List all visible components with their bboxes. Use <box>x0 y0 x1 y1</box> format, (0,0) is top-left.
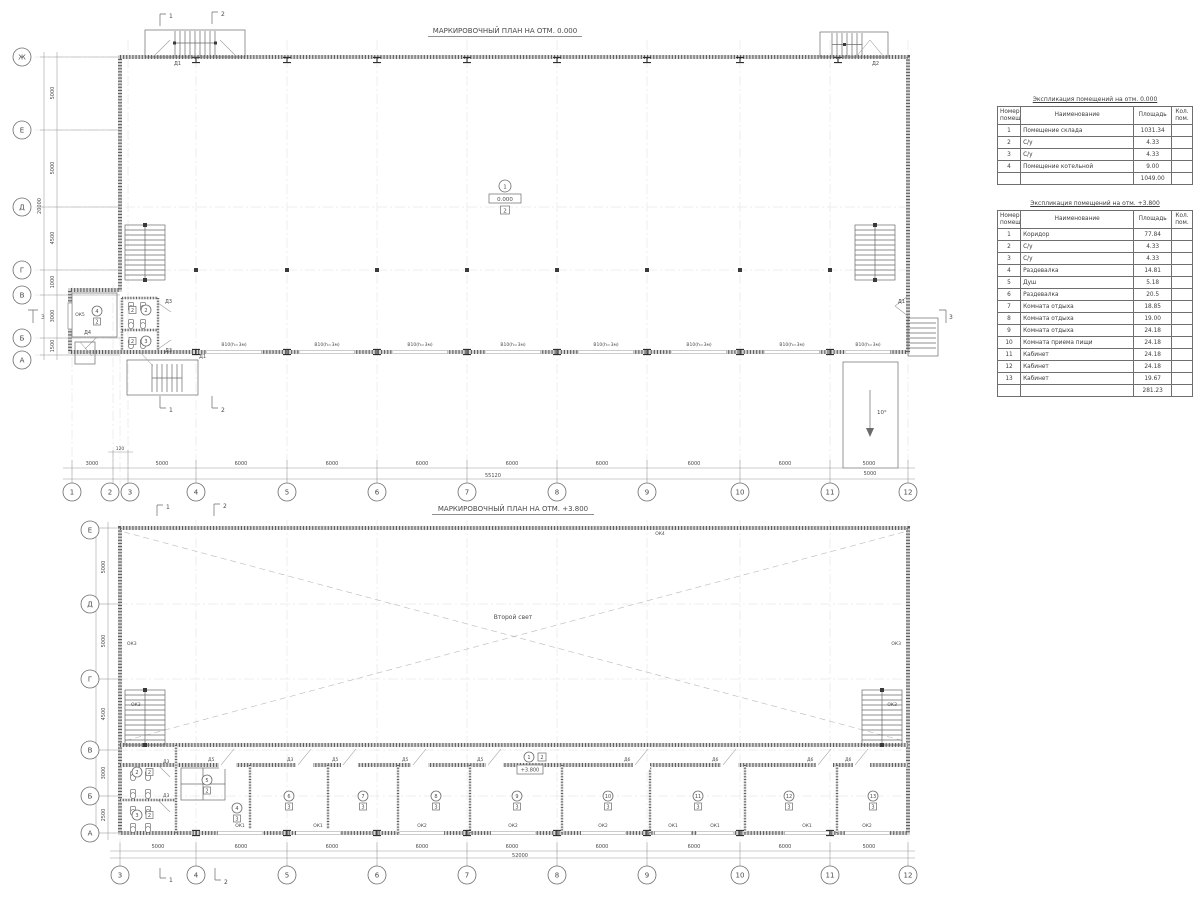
svg-text:6000: 6000 <box>596 844 609 850</box>
svg-text:1000: 1000 <box>50 276 56 289</box>
plan1-axis-lines <box>35 40 908 485</box>
door-label: Д1 <box>174 61 181 67</box>
elevation-value: +3.800 <box>521 768 540 774</box>
svg-text:В: В <box>20 292 25 300</box>
col-header-name: Наименование <box>1021 107 1134 125</box>
svg-text:ОК2: ОК2 <box>417 823 427 829</box>
svg-text:1500: 1500 <box>50 340 56 353</box>
svg-text:8: 8 <box>555 872 559 880</box>
table-row: 1Коридор77.84 <box>998 229 1193 241</box>
plan1-stair-top-left: Д1 <box>145 30 245 67</box>
svg-text:11: 11 <box>826 872 835 880</box>
svg-text:5: 5 <box>285 872 289 880</box>
svg-text:5000: 5000 <box>101 635 107 648</box>
room-number: 3 <box>144 339 147 345</box>
plan2-outer-wall <box>120 528 908 833</box>
svg-text:Б: Б <box>20 335 25 343</box>
svg-text:В10(h=3м): В10(h=3м) <box>686 342 711 348</box>
table-row: 5Душ5.18 <box>998 277 1193 289</box>
svg-text:7: 7 <box>465 872 469 880</box>
svg-text:ОК3: ОК3 <box>891 641 901 647</box>
svg-text:4: 4 <box>194 489 199 497</box>
col-header-area: Площадь <box>1134 211 1172 229</box>
svg-text:12: 12 <box>904 489 913 497</box>
room-number: 3 <box>135 813 138 819</box>
room-category: 2 <box>540 755 543 761</box>
schedule-table-0000: Номерпомещ. Наименование Площадь Кол.пом… <box>997 106 1193 185</box>
svg-text:Д6: Д6 <box>712 757 719 763</box>
table-row: 1Помещение склада1031.34 <box>998 125 1193 137</box>
section-mark-3: 3 <box>41 314 45 321</box>
table-row: 4Раздевалка14.81 <box>998 265 1193 277</box>
plan1-stair-bottom-left: Д1 <box>127 352 206 395</box>
svg-text:2: 2 <box>224 879 228 886</box>
svg-text:2: 2 <box>223 503 227 510</box>
svg-text:Д3: Д3 <box>287 757 294 763</box>
svg-text:6000: 6000 <box>779 461 792 467</box>
ramp-width: 5000 <box>864 471 877 477</box>
door-label: Д3 <box>165 299 172 305</box>
svg-text:В10(h=3м): В10(h=3м) <box>855 342 880 348</box>
svg-text:1: 1 <box>169 877 173 884</box>
plan1-section-top: 1 2 <box>160 11 225 26</box>
svg-text:Г: Г <box>20 267 24 275</box>
svg-text:11: 11 <box>695 794 701 800</box>
svg-text:6000: 6000 <box>688 461 701 467</box>
svg-text:5000: 5000 <box>152 844 165 850</box>
plan2-corridor-walls <box>120 745 908 765</box>
room-category: 2 <box>205 789 208 795</box>
col-header-count: Кол.пом. <box>1172 107 1193 125</box>
svg-text:Д5: Д5 <box>402 757 409 763</box>
svg-text:Д6: Д6 <box>845 757 852 763</box>
svg-text:5: 5 <box>285 489 289 497</box>
svg-text:ОК3: ОК3 <box>887 702 897 708</box>
table-row: 13Кабинет19.67 <box>998 373 1193 385</box>
svg-text:6000: 6000 <box>326 844 339 850</box>
svg-text:6000: 6000 <box>416 844 429 850</box>
schedule-title: Экспликация помещений на отм. +3.800 <box>997 200 1193 207</box>
table-row: 4Помещение котельной9.00 <box>998 161 1193 173</box>
svg-text:6000: 6000 <box>416 461 429 467</box>
svg-text:3: 3 <box>118 872 122 880</box>
svg-text:ОК1: ОК1 <box>313 823 323 829</box>
table-row: 12Кабинет24.18 <box>998 361 1193 373</box>
svg-text:Д5: Д5 <box>477 757 484 763</box>
total-width: 55120 <box>485 473 501 479</box>
room-category: 2 <box>131 339 134 345</box>
table-row: 2С/у4.33 <box>998 241 1193 253</box>
svg-text:Д5: Д5 <box>332 757 339 763</box>
plan1-axis-bubbles-left: Ж Е Д Г В Б А <box>13 48 31 369</box>
plan1-ramp: 10° 5000 <box>843 362 898 477</box>
col-header-num: Номерпомещ. <box>998 211 1021 229</box>
svg-text:Д: Д <box>19 204 25 212</box>
section-mark-1: 1 <box>169 407 173 414</box>
door-label: Д3 <box>163 793 170 799</box>
table-row: 2С/у4.33 <box>998 137 1193 149</box>
svg-text:6: 6 <box>375 872 380 880</box>
room-category: 2 <box>148 770 151 776</box>
svg-text:10: 10 <box>736 872 745 880</box>
svg-text:ОК2: ОК2 <box>598 823 608 829</box>
floor-plan-3800: МАРКИРОВОЧНЫЙ ПЛАН НА ОТМ. +3.800 Второй… <box>81 503 917 886</box>
table-row: 7Комната отдыха18.85 <box>998 301 1193 313</box>
window-label: ОК5 <box>75 312 85 318</box>
svg-text:В10(h=3м): В10(h=3м) <box>221 342 246 348</box>
second-light-label: Второй свет <box>494 614 533 621</box>
header-row: Номерпомещ. Наименование Площадь Кол.пом… <box>998 107 1193 125</box>
door-label: Д2 <box>872 61 879 67</box>
plan2-stairwell-left <box>125 688 165 747</box>
svg-text:8: 8 <box>555 489 559 497</box>
room-number: 4 <box>95 309 98 315</box>
table-row: 11Кабинет24.18 <box>998 349 1193 361</box>
svg-text:6000: 6000 <box>235 844 248 850</box>
col-header-num: Номерпомещ. <box>998 107 1021 125</box>
room-number: 1 <box>527 755 530 761</box>
svg-text:ОК2: ОК2 <box>862 823 872 829</box>
table-row: 10Комната приема пищи24.18 <box>998 337 1193 349</box>
plan1-room-tag: 1 0.000 2 <box>489 180 521 215</box>
svg-text:3: 3 <box>515 805 518 811</box>
svg-text:1: 1 <box>70 489 74 497</box>
svg-text:3: 3 <box>434 805 437 811</box>
table-row: 3С/у4.33 <box>998 253 1193 265</box>
plan2-room-tags: 6 3 7 3 8 3 9 3 10 3 11 3 12 3 13 3 <box>284 791 878 811</box>
svg-text:3: 3 <box>128 489 132 497</box>
plan1-title: МАРКИРОВОЧНЫЙ ПЛАН НА ОТМ. 0.000 <box>433 26 577 35</box>
room-category: 3 <box>235 817 238 823</box>
svg-text:ОК3: ОК3 <box>127 641 137 647</box>
svg-text:В10(h=3м): В10(h=3м) <box>314 342 339 348</box>
room-category: 2 <box>95 320 98 326</box>
svg-text:3000: 3000 <box>86 461 99 467</box>
plan2-axis-lines <box>100 520 908 868</box>
elevation-value: 0.000 <box>497 197 513 203</box>
svg-text:10: 10 <box>736 489 745 497</box>
header-row: Номерпомещ. Наименование Площадь Кол.пом… <box>998 211 1193 229</box>
svg-text:3: 3 <box>787 805 790 811</box>
svg-text:В: В <box>88 747 93 755</box>
svg-text:7: 7 <box>361 794 364 800</box>
table-row: 6Раздевалка20.5 <box>998 289 1193 301</box>
svg-text:3: 3 <box>361 805 364 811</box>
svg-text:6: 6 <box>287 794 290 800</box>
table-row: 8Комната отдыха19.00 <box>998 313 1193 325</box>
room-schedule-3800: Экспликация помещений на отм. +3.800 Ном… <box>997 200 1193 397</box>
section-mark-3: 3 <box>949 314 953 321</box>
drawing-sheet: МАРКИРОВОЧНЫЙ ПЛАН НА ОТМ. 0.000 <box>0 0 1200 900</box>
room-schedule-0000: Экспликация помещений на отм. 0.000 Номе… <box>997 96 1193 185</box>
table-row: 3С/у4.33 <box>998 149 1193 161</box>
svg-text:ОК2: ОК2 <box>508 823 518 829</box>
svg-text:6000: 6000 <box>779 844 792 850</box>
svg-text:3: 3 <box>871 805 874 811</box>
door-label: Д3 <box>165 348 172 354</box>
svg-text:ОК1: ОК1 <box>802 823 812 829</box>
plan1-section-bottom: 1 2 <box>160 396 225 414</box>
svg-text:А: А <box>20 357 25 365</box>
svg-text:9: 9 <box>515 794 518 800</box>
svg-text:12: 12 <box>786 794 792 800</box>
plan2-axis-bubbles-left: Е Д Г В Б А <box>81 521 99 842</box>
col-header-name: Наименование <box>1021 211 1134 229</box>
svg-text:2500: 2500 <box>101 809 107 822</box>
svg-text:6000: 6000 <box>326 461 339 467</box>
svg-text:Б: Б <box>88 793 93 801</box>
section-mark-2: 2 <box>221 407 225 414</box>
section-mark-1: 1 <box>169 13 173 20</box>
svg-text:6000: 6000 <box>596 461 609 467</box>
room-category: 2 <box>148 813 151 819</box>
svg-text:4: 4 <box>194 872 199 880</box>
plan2-shower-block: 5 2 4 3 <box>181 768 242 823</box>
plan1-opening-labels: В10(h=3м) В10(h=3м) В10(h=3м) В10(h=3м) … <box>221 342 880 348</box>
room-number: 5 <box>205 778 208 784</box>
plan2-axis-bubbles-bottom: 3 4 5 6 7 8 9 10 11 12 <box>111 866 917 884</box>
col-header-count: Кол.пом. <box>1172 211 1193 229</box>
total-row: 281.23 <box>998 385 1193 397</box>
plan1-axis-bubbles-bottom: 1 2 3 4 5 6 7 8 9 10 11 12 <box>63 483 917 501</box>
room-schedules: Экспликация помещений на отм. 0.000 Номе… <box>997 96 1193 397</box>
plan2-second-light: Второй свет <box>124 532 904 741</box>
svg-text:Е: Е <box>88 527 92 535</box>
total-height: 20000 <box>37 198 43 214</box>
svg-text:1: 1 <box>166 504 170 511</box>
door-label: Д3 <box>163 759 170 765</box>
room-number: 2 <box>144 308 147 314</box>
svg-text:10: 10 <box>605 794 611 800</box>
svg-text:5000: 5000 <box>863 461 876 467</box>
schedule-title: Экспликация помещений на отм. 0.000 <box>997 96 1193 103</box>
room-number: 2 <box>135 770 138 776</box>
plan1-column-marks <box>192 57 842 354</box>
plan1-stairwell-right <box>855 223 895 282</box>
svg-text:ОК4: ОК4 <box>655 531 665 537</box>
table-row: 9Комната отдыха24.18 <box>998 325 1193 337</box>
ramp-angle: 10° <box>877 410 887 416</box>
room-number: 1 <box>503 185 507 191</box>
svg-text:3: 3 <box>606 805 609 811</box>
room-category: 2 <box>131 308 134 314</box>
floor-plan-0000: МАРКИРОВОЧНЫЙ ПЛАН НА ОТМ. 0.000 <box>13 11 953 501</box>
plan2-dimensions-bottom: 5000 6000 6000 6000 6000 6000 6000 6000 … <box>110 842 915 866</box>
plan2-stairwell-right <box>862 688 902 747</box>
room-category: 2 <box>503 209 507 215</box>
total-row: 1049.00 <box>998 173 1193 185</box>
col-header-area: Площадь <box>1134 107 1172 125</box>
svg-text:Д6: Д6 <box>624 757 631 763</box>
svg-text:Г: Г <box>88 676 92 684</box>
door-label: Д4 <box>84 330 91 336</box>
svg-text:5000: 5000 <box>101 561 107 574</box>
door-label: Д1 <box>898 299 905 305</box>
svg-text:6000: 6000 <box>235 461 248 467</box>
svg-text:ОК3: ОК3 <box>131 702 141 708</box>
plan2-section-top: 1 2 <box>157 503 227 516</box>
plan1-section-left-3: 3 <box>28 310 45 323</box>
svg-text:11: 11 <box>826 489 835 497</box>
door-label: Д1 <box>199 354 206 360</box>
svg-text:4500: 4500 <box>50 232 56 245</box>
svg-text:3000: 3000 <box>101 767 107 780</box>
plan1-wc-block: 2 2 2 3 Д3 Д3 <box>122 298 172 354</box>
svg-text:В10(h=3м): В10(h=3м) <box>593 342 618 348</box>
svg-text:А: А <box>88 830 93 838</box>
svg-text:9: 9 <box>645 489 649 497</box>
svg-text:3: 3 <box>696 805 699 811</box>
svg-text:Д: Д <box>87 601 93 609</box>
svg-text:12: 12 <box>904 872 913 880</box>
svg-text:В10(h=3м): В10(h=3м) <box>779 342 804 348</box>
svg-text:ОК1: ОК1 <box>668 823 678 829</box>
plan1-stairwell-left <box>125 223 165 282</box>
svg-text:Ж: Ж <box>18 54 26 62</box>
svg-text:Д5: Д5 <box>208 757 215 763</box>
svg-text:В10(h=3м): В10(h=3м) <box>500 342 525 348</box>
room-number: 4 <box>235 806 238 812</box>
svg-text:6000: 6000 <box>506 461 519 467</box>
total-width: 52000 <box>512 853 528 859</box>
svg-text:5000: 5000 <box>863 844 876 850</box>
svg-text:3: 3 <box>287 805 290 811</box>
svg-text:8: 8 <box>434 794 437 800</box>
svg-text:3000: 3000 <box>50 310 56 323</box>
plan2-title: МАРКИРОВОЧНЫЙ ПЛАН НА ОТМ. +3.800 <box>438 504 588 513</box>
svg-text:13: 13 <box>870 794 876 800</box>
svg-text:5000: 5000 <box>50 87 56 100</box>
svg-text:В10(h=3м): В10(h=3м) <box>407 342 432 348</box>
plan1-outer-wall <box>70 57 908 352</box>
svg-text:5000: 5000 <box>50 162 56 175</box>
schedule-table-3800: Номерпомещ. Наименование Площадь Кол.пом… <box>997 210 1193 397</box>
svg-text:5000: 5000 <box>156 461 169 467</box>
plan1-stair-right-exit: Д1 3 <box>895 296 953 356</box>
svg-text:6: 6 <box>375 489 380 497</box>
svg-text:Д6: Д6 <box>807 757 814 763</box>
svg-text:6000: 6000 <box>506 844 519 850</box>
svg-text:2: 2 <box>108 489 112 497</box>
svg-text:Е: Е <box>20 127 24 135</box>
svg-text:ОК1: ОК1 <box>235 823 245 829</box>
svg-text:6000: 6000 <box>688 844 701 850</box>
section-mark-2: 2 <box>221 11 225 18</box>
svg-text:ОК1: ОК1 <box>710 823 720 829</box>
plan1-dimensions-bottom: 3000 120 5000 6000 6000 6000 6000 6000 6… <box>63 446 915 483</box>
svg-text:7: 7 <box>465 489 469 497</box>
svg-text:120: 120 <box>116 446 125 452</box>
svg-text:9: 9 <box>645 872 649 880</box>
svg-text:4500: 4500 <box>101 708 107 721</box>
